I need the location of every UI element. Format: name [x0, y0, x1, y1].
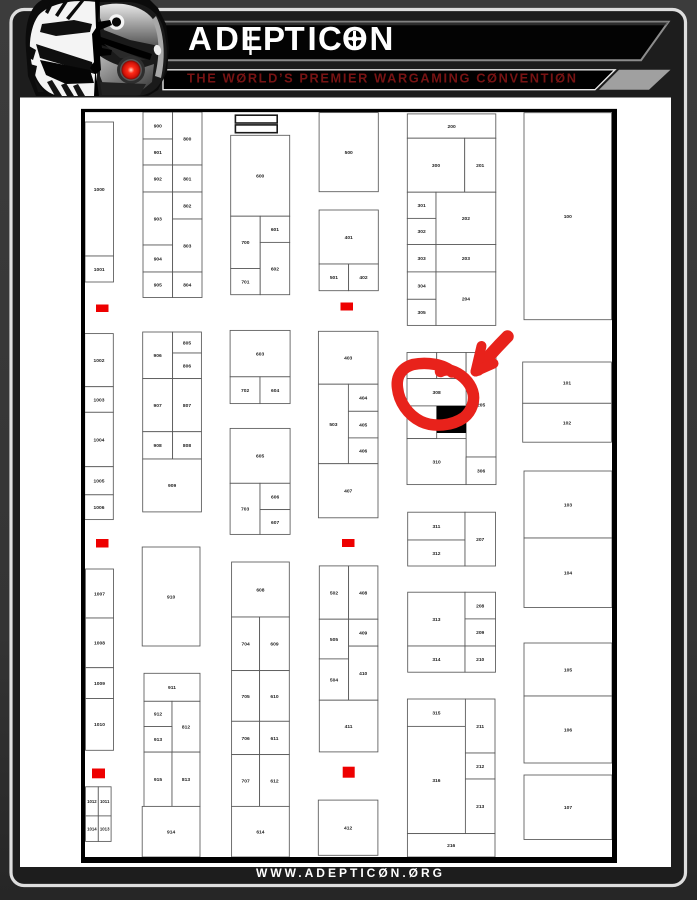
svg-text:410: 410 — [359, 671, 367, 677]
svg-text:707: 707 — [242, 778, 250, 784]
svg-text:T: T — [285, 20, 305, 57]
svg-text:312: 312 — [432, 551, 440, 557]
svg-text:204: 204 — [462, 296, 470, 302]
svg-text:910: 910 — [167, 594, 175, 600]
svg-text:1004: 1004 — [94, 437, 105, 443]
svg-text:807: 807 — [183, 403, 191, 409]
svg-text:104: 104 — [564, 571, 572, 577]
svg-text:705: 705 — [242, 694, 250, 700]
svg-text:900: 900 — [154, 123, 162, 129]
svg-text:N: N — [370, 20, 394, 57]
svg-text:905: 905 — [154, 283, 162, 289]
svg-text:WWW.ADEPTICØN.ØRG: WWW.ADEPTICØN.ØRG — [256, 866, 442, 880]
svg-text:212: 212 — [476, 764, 484, 770]
svg-text:604: 604 — [271, 388, 279, 394]
svg-text:305: 305 — [418, 310, 426, 316]
svg-text:805: 805 — [183, 340, 191, 346]
svg-text:404: 404 — [359, 396, 367, 402]
svg-text:209: 209 — [476, 630, 484, 636]
svg-text:1006: 1006 — [94, 505, 105, 511]
svg-text:311: 311 — [432, 524, 440, 530]
svg-text:614: 614 — [256, 830, 264, 836]
svg-text:907: 907 — [154, 403, 162, 409]
svg-text:608: 608 — [256, 587, 264, 593]
svg-text:501: 501 — [330, 275, 338, 281]
svg-text:702: 702 — [241, 388, 249, 394]
svg-text:200: 200 — [448, 124, 456, 130]
svg-text:407: 407 — [344, 489, 352, 495]
svg-text:304: 304 — [418, 283, 426, 289]
svg-text:1014: 1014 — [87, 826, 97, 831]
svg-text:1000: 1000 — [94, 187, 105, 193]
svg-text:202: 202 — [462, 216, 470, 222]
svg-text:806: 806 — [183, 364, 191, 370]
svg-text:1008: 1008 — [94, 641, 105, 647]
svg-text:314: 314 — [432, 657, 440, 663]
svg-text:908: 908 — [154, 443, 162, 449]
svg-text:208: 208 — [476, 603, 484, 609]
svg-text:802: 802 — [183, 203, 191, 209]
svg-text:500: 500 — [345, 150, 353, 156]
svg-text:301: 301 — [418, 203, 426, 209]
svg-text:103: 103 — [564, 502, 572, 508]
svg-text:1009: 1009 — [94, 681, 105, 687]
svg-text:813: 813 — [182, 777, 190, 783]
svg-text:411: 411 — [345, 724, 353, 730]
svg-text:1003: 1003 — [94, 397, 105, 403]
svg-text:612: 612 — [270, 778, 278, 784]
svg-text:303: 303 — [418, 256, 426, 262]
svg-text:703: 703 — [241, 507, 249, 513]
svg-text:607: 607 — [271, 520, 279, 526]
svg-text:505: 505 — [330, 637, 338, 643]
svg-text:310: 310 — [433, 459, 441, 465]
svg-text:316: 316 — [432, 778, 440, 784]
svg-text:700: 700 — [241, 240, 249, 246]
svg-text:800: 800 — [183, 136, 191, 142]
svg-text:1002: 1002 — [94, 358, 105, 364]
svg-text:904: 904 — [154, 256, 162, 262]
svg-text:211: 211 — [476, 724, 484, 730]
svg-text:302: 302 — [418, 229, 426, 235]
svg-text:107: 107 — [564, 805, 572, 811]
svg-text:1005: 1005 — [94, 479, 105, 485]
svg-text:D: D — [215, 20, 239, 57]
svg-text:801: 801 — [183, 176, 191, 182]
svg-text:408: 408 — [359, 590, 367, 596]
svg-text:909: 909 — [168, 483, 176, 489]
svg-text:704: 704 — [242, 642, 250, 648]
svg-text:1011: 1011 — [100, 799, 110, 804]
svg-text:213: 213 — [476, 804, 484, 810]
svg-text:313: 313 — [432, 617, 440, 623]
svg-text:412: 412 — [344, 826, 352, 832]
svg-text:603: 603 — [256, 351, 264, 357]
svg-text:600: 600 — [256, 174, 264, 180]
svg-text:207: 207 — [476, 537, 484, 543]
svg-text:P: P — [263, 20, 285, 57]
svg-text:306: 306 — [477, 469, 485, 475]
svg-text:808: 808 — [183, 443, 191, 449]
svg-text:913: 913 — [154, 737, 162, 743]
svg-text:601: 601 — [271, 227, 279, 233]
svg-text:105: 105 — [564, 667, 572, 673]
svg-text:502: 502 — [330, 590, 338, 596]
svg-text:605: 605 — [256, 454, 264, 460]
svg-text:203: 203 — [462, 256, 470, 262]
svg-text:906: 906 — [154, 353, 162, 359]
svg-text:503: 503 — [329, 422, 337, 428]
svg-text:804: 804 — [183, 283, 191, 289]
svg-text:903: 903 — [154, 216, 162, 222]
svg-text:201: 201 — [476, 163, 484, 169]
svg-text:912: 912 — [154, 712, 162, 718]
svg-text:315: 315 — [432, 711, 440, 717]
svg-text:1012: 1012 — [87, 799, 97, 804]
svg-text:1010: 1010 — [94, 722, 105, 728]
svg-text:I: I — [308, 20, 317, 57]
svg-text:914: 914 — [167, 830, 175, 836]
svg-text:101: 101 — [563, 380, 571, 386]
svg-text:402: 402 — [359, 275, 367, 281]
svg-text:C: C — [318, 20, 342, 57]
svg-text:106: 106 — [564, 727, 572, 733]
svg-text:210: 210 — [476, 657, 484, 663]
svg-text:216: 216 — [447, 843, 455, 849]
svg-text:812: 812 — [182, 725, 190, 731]
svg-text:609: 609 — [270, 642, 278, 648]
svg-text:100: 100 — [564, 214, 572, 220]
svg-text:401: 401 — [345, 235, 353, 241]
svg-text:405: 405 — [359, 422, 367, 428]
svg-text:409: 409 — [359, 631, 367, 637]
svg-text:915: 915 — [154, 777, 162, 783]
svg-text:A: A — [188, 20, 212, 57]
svg-text:606: 606 — [271, 494, 279, 500]
svg-text:THE WØRLD’S PREMIER WARGAMING: THE WØRLD’S PREMIER WARGAMING CØNVENTIØN — [187, 71, 576, 86]
svg-text:504: 504 — [330, 677, 338, 683]
svg-text:602: 602 — [271, 266, 279, 272]
svg-text:902: 902 — [154, 176, 162, 182]
svg-text:803: 803 — [183, 243, 191, 249]
svg-text:300: 300 — [432, 163, 440, 169]
svg-text:701: 701 — [241, 279, 249, 285]
svg-text:1007: 1007 — [94, 591, 105, 597]
svg-text:610: 610 — [270, 694, 278, 700]
svg-text:611: 611 — [271, 736, 279, 742]
svg-text:706: 706 — [242, 736, 250, 742]
svg-text:901: 901 — [154, 150, 162, 156]
svg-text:1013: 1013 — [100, 826, 110, 831]
svg-text:308: 308 — [433, 390, 441, 396]
svg-text:1001: 1001 — [94, 267, 105, 273]
svg-text:102: 102 — [563, 421, 571, 427]
svg-text:911: 911 — [168, 685, 176, 691]
svg-text:406: 406 — [359, 449, 367, 455]
svg-text:403: 403 — [344, 356, 352, 362]
